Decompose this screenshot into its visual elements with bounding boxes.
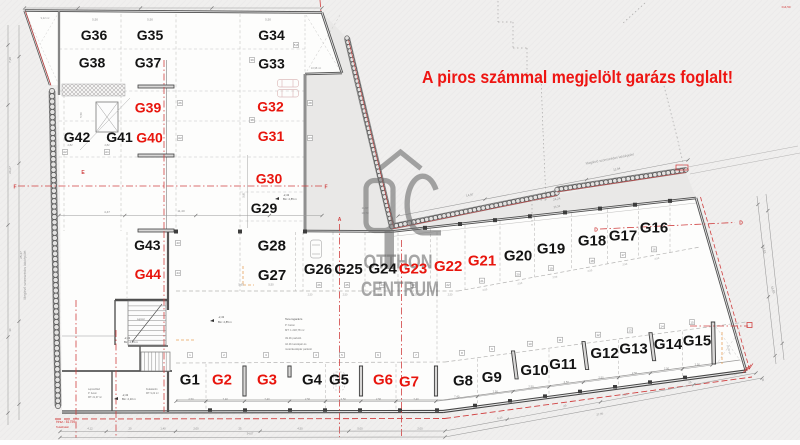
svg-text:F: F bbox=[324, 185, 327, 191]
svg-text:49 db parkoló: 49 db parkoló bbox=[285, 336, 302, 340]
svg-text:motorkerékpár parkoló: motorkerékpár parkoló bbox=[285, 347, 312, 351]
svg-text:5,60: 5,60 bbox=[238, 283, 244, 287]
svg-text:2,50: 2,50 bbox=[308, 294, 313, 297]
svg-text:2,50: 2,50 bbox=[305, 397, 311, 401]
svg-text:G18: G18 bbox=[578, 232, 606, 249]
svg-text:7,40: 7,40 bbox=[223, 397, 229, 401]
svg-text:G25: G25 bbox=[334, 261, 362, 278]
svg-text:2,50: 2,50 bbox=[632, 371, 638, 375]
svg-text:G7: G7 bbox=[399, 373, 419, 390]
svg-text:G22: G22 bbox=[434, 258, 462, 275]
svg-text:Bm: 2,10 m: Bm: 2,10 m bbox=[122, 397, 137, 401]
svg-text:-2,43: -2,43 bbox=[122, 393, 129, 397]
svg-text:20: 20 bbox=[129, 427, 132, 431]
svg-text:F: F bbox=[13, 185, 16, 191]
svg-text:26: 26 bbox=[317, 283, 321, 287]
svg-text:G36: G36 bbox=[81, 27, 108, 43]
svg-text:1,40: 1,40 bbox=[160, 427, 166, 431]
svg-text:CENTRUM: CENTRUM bbox=[361, 277, 439, 301]
svg-text:39: 39 bbox=[250, 58, 254, 62]
svg-text:G43: G43 bbox=[134, 237, 161, 253]
svg-text:Meglévő szomszédos lakóépület: Meglévő szomszédos lakóépület bbox=[23, 250, 27, 299]
svg-text:2,50: 2,50 bbox=[376, 397, 382, 401]
svg-text:A piros számmal megjelölt gará: A piros számmal megjelölt garázs foglalt… bbox=[422, 67, 733, 87]
svg-text:25: 25 bbox=[345, 283, 349, 287]
svg-text:7,40: 7,40 bbox=[454, 395, 460, 399]
svg-text:G31: G31 bbox=[258, 128, 285, 144]
svg-text:44: 44 bbox=[176, 271, 180, 275]
svg-text:5,81: 5,81 bbox=[242, 192, 246, 198]
svg-text:Bm: 2,85 m: Bm: 2,85 m bbox=[283, 197, 298, 201]
svg-text:G17: G17 bbox=[609, 227, 637, 244]
svg-text:4,47: 4,47 bbox=[104, 210, 110, 214]
svg-text:Lépcsőházi: Lépcsőházi bbox=[88, 388, 101, 391]
svg-text:G8: G8 bbox=[453, 372, 473, 389]
svg-text:2,50: 2,50 bbox=[188, 397, 194, 401]
svg-text:P: beton: P: beton bbox=[285, 323, 296, 327]
svg-text:2,00: 2,00 bbox=[193, 427, 199, 431]
svg-text:4,12: 4,12 bbox=[87, 427, 93, 431]
svg-text:Hrsz.: 81759: Hrsz.: 81759 bbox=[56, 420, 75, 424]
svg-text:11,40: 11,40 bbox=[177, 209, 185, 213]
svg-text:G27: G27 bbox=[258, 267, 286, 284]
svg-text:2,50: 2,50 bbox=[343, 294, 348, 297]
svg-text:A1: A1 bbox=[105, 150, 109, 154]
svg-text:18: 18 bbox=[590, 259, 594, 263]
svg-text:7,40: 7,40 bbox=[413, 397, 419, 401]
svg-text:A: A bbox=[338, 217, 342, 223]
svg-text:Bm: 2,85 m: Bm: 2,85 m bbox=[218, 320, 233, 324]
svg-text:28: 28 bbox=[308, 101, 312, 105]
svg-text:17: 17 bbox=[621, 253, 625, 257]
svg-text:G21: G21 bbox=[468, 252, 496, 269]
svg-text:A2: A2 bbox=[63, 150, 67, 154]
svg-text:G24: G24 bbox=[369, 260, 398, 277]
svg-text:G3: G3 bbox=[257, 371, 277, 388]
svg-text:22: 22 bbox=[446, 283, 450, 287]
svg-text:G32: G32 bbox=[257, 98, 284, 114]
svg-text:5,50: 5,50 bbox=[92, 18, 98, 22]
svg-text:20: 20 bbox=[516, 272, 520, 276]
svg-text:5,00: 5,00 bbox=[357, 427, 363, 431]
svg-text:G20: G20 bbox=[504, 247, 532, 264]
svg-text:G23: G23 bbox=[399, 260, 427, 277]
svg-text:G28: G28 bbox=[258, 238, 286, 255]
svg-text:G12: G12 bbox=[590, 345, 618, 362]
svg-text:5,50: 5,50 bbox=[265, 18, 271, 22]
svg-text:2,00: 2,00 bbox=[417, 427, 423, 431]
svg-text:G13: G13 bbox=[619, 340, 647, 357]
svg-text:-2,43: -2,43 bbox=[124, 336, 131, 340]
svg-text:2,50: 2,50 bbox=[564, 380, 570, 384]
svg-text:38: 38 bbox=[250, 118, 254, 122]
svg-text:G44: G44 bbox=[135, 266, 162, 282]
svg-text:G40: G40 bbox=[136, 129, 163, 145]
svg-text:10,98 m²: 10,98 m² bbox=[311, 66, 321, 70]
svg-text:43: 43 bbox=[176, 241, 180, 245]
svg-text:G38: G38 bbox=[79, 54, 106, 70]
svg-text:-2,43: -2,43 bbox=[283, 193, 290, 197]
svg-text:G42: G42 bbox=[64, 129, 91, 145]
svg-text:G14: G14 bbox=[654, 336, 683, 353]
svg-text:G9: G9 bbox=[482, 369, 502, 386]
svg-text:G37: G37 bbox=[135, 54, 162, 70]
svg-text:26: 26 bbox=[178, 101, 182, 105]
svg-text:2,50: 2,50 bbox=[448, 294, 453, 297]
svg-text:G39: G39 bbox=[135, 99, 162, 115]
svg-text:G5: G5 bbox=[329, 371, 349, 388]
svg-text:12: 12 bbox=[596, 333, 600, 337]
svg-text:MT: 9,22 m²: MT: 9,22 m² bbox=[146, 392, 159, 395]
svg-text:5,50: 5,50 bbox=[147, 18, 153, 22]
svg-text:G2: G2 bbox=[212, 371, 232, 388]
svg-text:2,50: 2,50 bbox=[598, 375, 604, 379]
svg-text:9,22 m²: 9,22 m² bbox=[41, 16, 50, 20]
svg-text:G11: G11 bbox=[549, 356, 577, 373]
svg-text:15: 15 bbox=[690, 320, 694, 324]
svg-text:2,50: 2,50 bbox=[528, 385, 534, 389]
svg-text:G6: G6 bbox=[373, 371, 393, 388]
svg-text:21: 21 bbox=[480, 279, 484, 283]
svg-text:G41: G41 bbox=[106, 129, 133, 145]
svg-text:2,50: 2,50 bbox=[341, 397, 347, 401]
svg-text:G34: G34 bbox=[258, 27, 285, 43]
svg-text:11: 11 bbox=[558, 338, 561, 342]
svg-text:5,50: 5,50 bbox=[79, 112, 83, 118]
svg-text:14: 14 bbox=[660, 324, 664, 328]
svg-text:Teremgarázs: Teremgarázs bbox=[285, 317, 303, 321]
svg-text:A3: A3 bbox=[308, 136, 312, 140]
svg-text:G33: G33 bbox=[258, 55, 285, 71]
svg-text:G26: G26 bbox=[304, 261, 332, 278]
svg-text:Bm: 2,25 m: Bm: 2,25 m bbox=[124, 340, 139, 344]
svg-text:±14,50: ±14,50 bbox=[781, 5, 790, 9]
svg-text:A2: A2 bbox=[178, 136, 182, 140]
svg-text:G4: G4 bbox=[302, 371, 323, 388]
svg-text:34,07: 34,07 bbox=[247, 432, 254, 436]
svg-text:G29: G29 bbox=[251, 200, 278, 216]
svg-text:10: 10 bbox=[528, 342, 532, 346]
svg-text:MT: 1 218,78 m²: MT: 1 218,78 m² bbox=[285, 328, 305, 332]
svg-text:MT: 21,07 m²: MT: 21,07 m² bbox=[88, 396, 102, 399]
svg-text:Kukatároló: Kukatároló bbox=[146, 388, 158, 391]
svg-text:G35: G35 bbox=[137, 27, 164, 43]
svg-text:Telekhatár: Telekhatár bbox=[56, 425, 69, 429]
svg-text:24,27: 24,27 bbox=[8, 166, 12, 174]
svg-text:42 db kerékpár és: 42 db kerékpár és bbox=[285, 342, 307, 346]
svg-text:2,50: 2,50 bbox=[493, 390, 499, 394]
svg-text:13: 13 bbox=[628, 329, 632, 333]
svg-text:16: 16 bbox=[652, 248, 656, 252]
svg-text:G16: G16 bbox=[640, 219, 668, 236]
svg-text:4,50: 4,50 bbox=[297, 427, 303, 431]
svg-text:G1: G1 bbox=[180, 371, 200, 388]
svg-text:-2,43: -2,43 bbox=[218, 315, 225, 319]
svg-text:7,40: 7,40 bbox=[264, 397, 270, 401]
svg-text:25: 25 bbox=[239, 427, 242, 431]
svg-text:2,50: 2,50 bbox=[695, 363, 701, 367]
svg-text:19: 19 bbox=[549, 266, 553, 270]
svg-text:5,8: 5,8 bbox=[294, 43, 299, 47]
svg-text:G15: G15 bbox=[683, 332, 711, 349]
svg-text:2,50: 2,50 bbox=[664, 367, 670, 371]
svg-text:Lépcső: Lépcső bbox=[137, 318, 145, 321]
svg-text:G19: G19 bbox=[537, 240, 565, 257]
svg-text:G30: G30 bbox=[256, 170, 283, 186]
svg-text:7,38: 7,38 bbox=[8, 57, 12, 63]
svg-text:G10: G10 bbox=[520, 362, 548, 379]
svg-text:D: D bbox=[739, 221, 743, 227]
svg-text:P: beton: P: beton bbox=[88, 392, 98, 395]
